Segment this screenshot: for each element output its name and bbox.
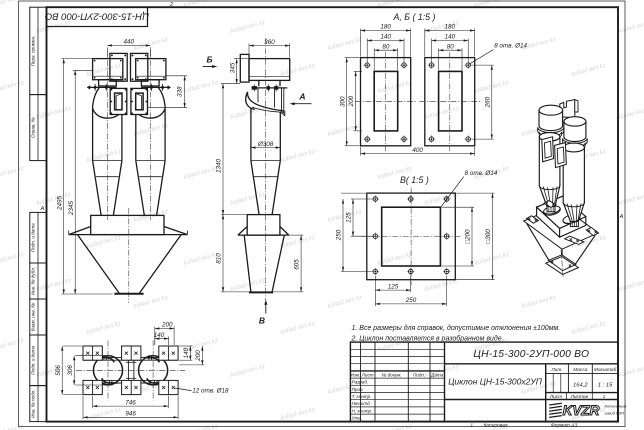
svg-text:kotlad-lws.kz: kotlad-lws.kz [280,406,317,422]
svg-text:kotlad-lws.kz: kotlad-lws.kz [230,277,267,293]
svg-text:kotlad-lws.kz: kotlad-lws.kz [280,148,317,164]
svg-text:Перв. примен.: Перв. примен. [31,36,36,67]
svg-text:kotlad-lws.kz: kotlad-lws.kz [183,79,220,95]
svg-text:kotlad-lws.kz: kotlad-lws.kz [133,122,170,138]
svg-text:506: 506 [55,365,62,376]
svg-text:1: 1 [603,394,606,400]
svg-text:kotlad-lws.kz: kotlad-lws.kz [0,79,26,95]
svg-text:KVZR: KVZR [563,403,600,418]
svg-text:kotlad-lws.kz: kotlad-lws.kz [521,294,558,310]
svg-text:Копировал: Копировал [484,422,508,428]
svg-text:180: 180 [380,24,391,31]
svg-text:260: 260 [484,96,491,108]
svg-text:ЦН-15-300-2УП-000 ВО: ЦН-15-300-2УП-000 ВО [473,349,589,360]
svg-text:360: 360 [264,39,275,46]
svg-text:Инв. № дубл.: Инв. № дубл. [31,267,36,295]
svg-text:Котельный: Котельный [605,404,628,409]
svg-text:kotlad-lws.kz: kotlad-lws.kz [230,363,267,379]
svg-text:140: 140 [183,347,190,358]
svg-text:Подп.: Подп. [413,372,425,377]
svg-text:kotlad-lws.kz: kotlad-lws.kz [0,165,26,181]
svg-text:164,2: 164,2 [573,383,588,389]
svg-text:Н. контр.: Н. контр. [352,408,373,413]
svg-text:Листов: Листов [570,394,589,400]
svg-text:kotlad-lws.kz: kotlad-lws.kz [0,251,26,267]
svg-text:Взам. инв. №: Взам. инв. № [31,303,36,331]
svg-text:2495: 2495 [56,196,63,212]
svg-text:kotlad-lws.kz: kotlad-lws.kz [86,234,123,250]
svg-text:kotlad-lws.kz: kotlad-lws.kz [230,105,267,121]
svg-text:2. Циклон поставляется в разоб: 2. Циклон поставляется в разобранном вид… [351,334,504,342]
svg-text:306: 306 [67,365,74,376]
svg-text:746: 746 [125,399,136,406]
svg-text:Изм.: Изм. [351,372,361,377]
svg-text:8 отв. Ø14: 8 отв. Ø14 [494,43,527,50]
svg-text:kotlad-lws.kz: kotlad-lws.kz [618,191,644,207]
svg-text:345: 345 [229,62,236,73]
svg-text:А: А [298,92,305,102]
svg-text:kotlad-lws.kz: kotlad-lws.kz [183,251,220,267]
svg-text:2345: 2345 [68,201,75,217]
svg-text:kotlad-lws.kz: kotlad-lws.kz [571,320,608,336]
svg-text:kotlad-lws.kz: kotlad-lws.kz [618,19,644,35]
svg-text:Т. контр.: Т. контр. [352,394,372,399]
svg-text:1340: 1340 [216,159,223,174]
svg-text:1. Все размеры для справок, до: 1. Все размеры для справок, допустимые о… [352,324,561,332]
svg-text:kotlad-lws.kz: kotlad-lws.kz [280,62,317,78]
svg-text:200: 200 [195,350,202,362]
svg-text:Подп. и дата: Подп. и дата [31,223,36,252]
svg-text:kotlad-lws.kz: kotlad-lws.kz [327,122,364,138]
svg-text:Пров.: Пров. [352,387,364,392]
svg-text:Ø308: Ø308 [257,141,274,148]
svg-text:810: 810 [216,253,223,264]
svg-text:1: 1 [470,422,473,428]
svg-text:kotlad-lws.kz: kotlad-lws.kz [474,251,511,267]
svg-text:kotlad-lws.kz: kotlad-lws.kz [571,62,608,78]
svg-text:Лист: Лист [549,394,562,400]
svg-text:605: 605 [294,259,301,270]
svg-text:Масштаб: Масштаб [594,367,617,373]
svg-text:□200: □200 [465,229,472,244]
svg-text:140: 140 [445,34,456,41]
svg-text:ЦН-15-300-2УП-000 ВО: ЦН-15-300-2УП-000 ВО [44,11,149,22]
svg-text:Нач.отд: Нач.отд [352,401,371,406]
svg-text:2: 2 [169,2,173,8]
svg-text:338: 338 [176,86,183,97]
svg-text:kotlad-lws.kz: kotlad-lws.kz [86,406,123,422]
svg-text:12 отв. Ø18: 12 отв. Ø18 [192,387,229,394]
svg-text:kotlad-lws.kz: kotlad-lws.kz [36,277,73,293]
svg-text:А: А [39,206,44,212]
svg-text:kotlad-lws.kz: kotlad-lws.kz [377,79,414,95]
svg-text:В: В [259,316,265,326]
svg-text:kotlad-lws.kz: kotlad-lws.kz [86,320,123,336]
svg-text:250: 250 [405,297,417,304]
svg-text:Формат А3: Формат А3 [551,422,578,428]
svg-text:kotlad-lws.kz: kotlad-lws.kz [327,294,364,310]
svg-text:440: 440 [124,39,135,46]
svg-text:kotlad-lws.kz: kotlad-lws.kz [618,277,644,293]
svg-text:kotlad-lws.kz: kotlad-lws.kz [86,148,123,164]
svg-text:80: 80 [382,43,390,50]
svg-text:Разраб.: Разраб. [352,380,369,385]
svg-text:kotlad-lws.kz: kotlad-lws.kz [327,36,364,52]
svg-text:200: 200 [161,322,173,329]
svg-text:А, Б ( 1:5 ): А, Б ( 1:5 ) [393,12,436,22]
svg-text:Дата: Дата [430,372,444,377]
svg-text:Лист: Лист [361,372,374,377]
svg-text:А: А [619,214,624,220]
svg-text:300: 300 [339,96,346,107]
svg-text:kotlad-lws.kz: kotlad-lws.kz [133,36,170,52]
svg-text:kotlad-lws.kz: kotlad-lws.kz [424,105,461,121]
svg-text:kotlad-lws.kz: kotlad-lws.kz [183,165,220,181]
svg-text:Масса: Масса [573,367,588,373]
svg-text:125: 125 [388,283,399,290]
svg-text:946: 946 [125,411,136,418]
svg-text:Лит.: Лит. [550,367,562,373]
svg-text:Циклон ЦН-15-300х2УП: Циклон ЦН-15-300х2УП [448,377,543,387]
svg-text:kotlad-lws.kz: kotlad-lws.kz [36,105,73,121]
svg-text:140: 140 [154,332,165,339]
svg-text:200: 200 [348,95,355,107]
svg-text:80: 80 [447,43,455,50]
svg-text:kotlad-lws.kz: kotlad-lws.kz [280,320,317,336]
svg-text:№ докум.: № докум. [381,372,401,377]
svg-text:Подп. и дата: Подп. и дата [31,345,36,374]
svg-text:kotlad-lws.kz: kotlad-lws.kz [474,79,511,95]
svg-text:Инв. № подл.: Инв. № подл. [31,389,36,418]
svg-text:Утв.: Утв. [352,416,362,421]
svg-text:8 отв. Ø14: 8 отв. Ø14 [465,170,498,177]
svg-text:kotlad-lws.kz: kotlad-lws.kz [618,363,644,379]
svg-text:kotlad-lws.kz: kotlad-lws.kz [133,294,170,310]
svg-text:□300: □300 [485,229,492,244]
svg-text:kotlad-lws.kz: kotlad-lws.kz [618,105,644,121]
svg-text:400: 400 [412,147,423,154]
svg-text:140: 140 [380,34,391,41]
svg-text:kotlad-lws.kz: kotlad-lws.kz [230,19,267,35]
svg-text:250: 250 [336,229,343,241]
svg-text:180: 180 [445,24,456,31]
svg-text:125: 125 [346,212,353,223]
svg-text:В( 1:5 ): В( 1:5 ) [400,175,429,185]
svg-text:kotlad-lws.kz: kotlad-lws.kz [230,191,267,207]
svg-text:завод РЗП: завод РЗП [604,411,625,416]
svg-text:1 : 15: 1 : 15 [598,383,613,389]
svg-text:Справ. №: Справ. № [31,117,36,138]
svg-text:kotlad-lws.kz: kotlad-lws.kz [86,62,123,78]
svg-text:kotlad-lws.kz: kotlad-lws.kz [280,234,317,250]
svg-text:Б: Б [206,55,212,65]
svg-text:kotlad-lws.kz: kotlad-lws.kz [0,337,26,353]
